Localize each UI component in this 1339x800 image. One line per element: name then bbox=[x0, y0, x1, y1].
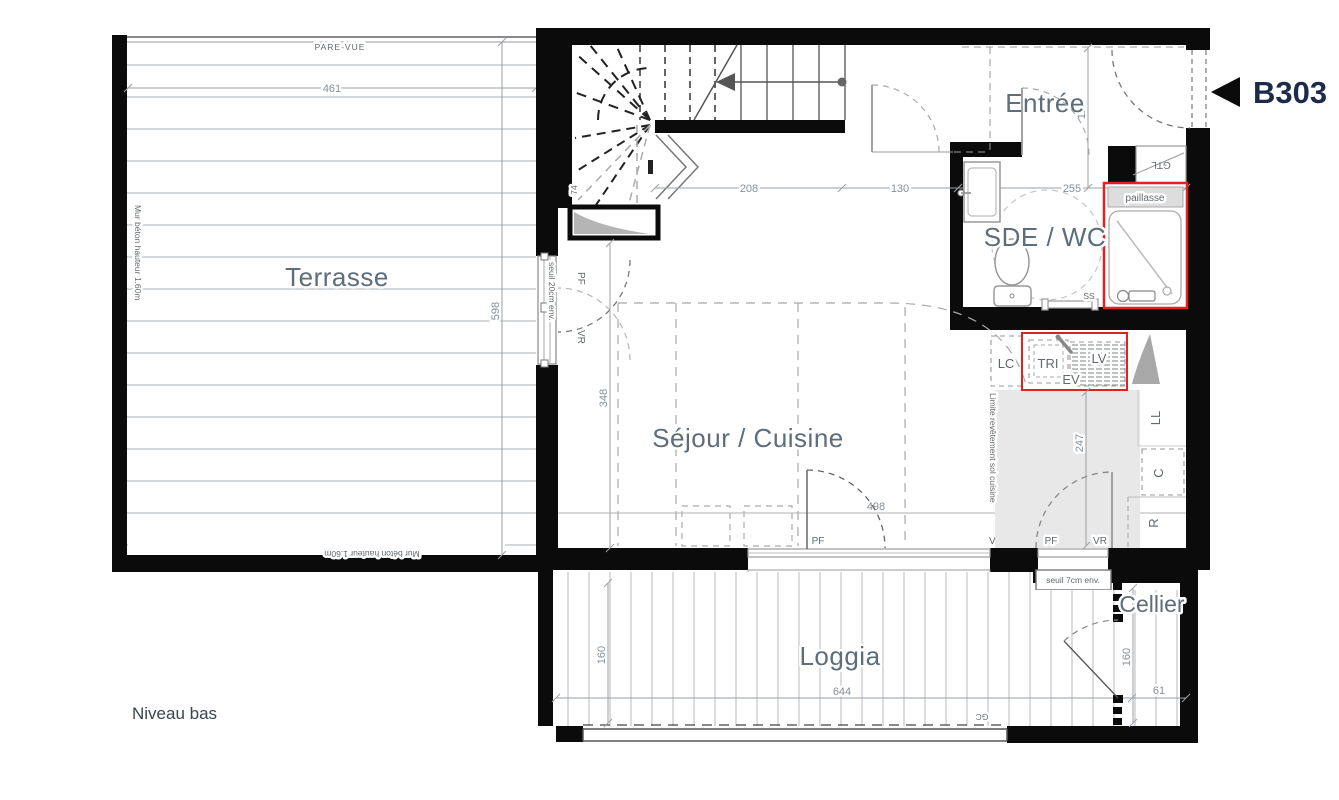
loggia-south-wall bbox=[1007, 726, 1180, 743]
north-wall bbox=[536, 28, 1196, 45]
level-label: Niveau bas bbox=[132, 704, 217, 723]
west-wall-stairs bbox=[536, 28, 572, 208]
gtl-cabinet: GTL bbox=[1133, 146, 1186, 183]
under-stair-cupboard bbox=[570, 207, 658, 238]
dim-498: 498 bbox=[867, 501, 885, 513]
lv-label: LV bbox=[1092, 351, 1107, 366]
loggia-railing bbox=[583, 729, 1007, 741]
c-label: C bbox=[1151, 468, 1166, 477]
ev-label: EV bbox=[1062, 372, 1080, 387]
entry-door bbox=[1112, 50, 1206, 128]
stair-winder-upper bbox=[574, 45, 650, 120]
dim-247: 247 bbox=[1074, 434, 1086, 452]
dim-61: 61 bbox=[1153, 685, 1165, 697]
dim-208: 208 bbox=[740, 183, 758, 195]
dim-598: 598 bbox=[490, 302, 502, 320]
dim-160-loggia: 160 bbox=[596, 646, 608, 664]
seuil-20-label: seuil 20cm env. bbox=[547, 262, 557, 320]
tri-label: TRI bbox=[1038, 356, 1059, 371]
stair-treads-dashed bbox=[640, 45, 715, 120]
entry-door-arc bbox=[1112, 50, 1190, 128]
loggia-area: 644 160 GC Loggia bbox=[552, 572, 1190, 741]
vr-label-west: VR bbox=[575, 330, 586, 344]
dim-74: 74 bbox=[569, 185, 579, 195]
gc-label: GC bbox=[976, 712, 989, 722]
terrasse-west-wall bbox=[112, 35, 127, 572]
floor-plan-drawing: 461 598 Mur béton hauteur 1.60m Mur béto… bbox=[0, 0, 1339, 800]
paillasse-label: paillasse bbox=[1126, 193, 1165, 204]
terrasse-label: Terrasse bbox=[285, 262, 389, 292]
stair-wall bbox=[655, 120, 845, 133]
mur-beton-label-bottom: Mur béton hauteur 1.60m bbox=[324, 549, 419, 559]
dim-644: 644 bbox=[833, 686, 851, 698]
lc-label: LC bbox=[998, 356, 1015, 371]
stair-direction-arrow bbox=[716, 73, 847, 91]
sde-wc-label: SDE / WC bbox=[984, 222, 1106, 252]
sde-wc-area: SS paillasse SDE / WC bbox=[958, 88, 1187, 310]
washbasin-icon bbox=[958, 162, 1000, 222]
unit-id-label: B303 bbox=[1253, 75, 1327, 110]
limite-revetement-label: Limite revêtement sol cuisine bbox=[988, 393, 998, 503]
mur-beton-label-left: Mur béton hauteur 1.60m bbox=[133, 205, 143, 300]
dim-160-cellier: 160 bbox=[1121, 648, 1133, 666]
window-door-arc bbox=[558, 260, 630, 332]
pf-label-south1: PF bbox=[812, 536, 825, 547]
dim-461: 461 bbox=[323, 83, 341, 95]
pf-label-west: PF bbox=[575, 272, 586, 285]
south-wall-sejour bbox=[536, 548, 748, 570]
loggia-label: Loggia bbox=[799, 641, 880, 671]
terrasse-area: 461 598 Mur béton hauteur 1.60m Mur béto… bbox=[112, 35, 542, 572]
floor-plan-page: 461 598 Mur béton hauteur 1.60m Mur béto… bbox=[0, 0, 1339, 800]
sejour-partition-door bbox=[872, 85, 953, 152]
sejour-label: Séjour / Cuisine bbox=[652, 423, 844, 453]
sde-west-wall bbox=[950, 142, 963, 329]
furniture-dashed-1 bbox=[682, 506, 730, 546]
pf-label-south2: PF bbox=[1045, 536, 1058, 547]
r-label: R bbox=[1146, 518, 1161, 527]
kitchen-floor bbox=[995, 390, 1140, 548]
furniture-dashed-2 bbox=[744, 506, 792, 546]
staircase: 74 bbox=[569, 45, 847, 238]
unit-arrow-icon bbox=[1211, 77, 1240, 107]
east-wall bbox=[1186, 128, 1210, 570]
shower-icon: paillasse bbox=[1104, 183, 1187, 308]
vr-label-south2: VR bbox=[1093, 536, 1107, 547]
west-window: PF VR seuil 20cm env. bbox=[538, 253, 630, 367]
seuil-7-label-2: seuil 7cm env. bbox=[1046, 575, 1100, 585]
cellier-label: Cellier bbox=[1119, 591, 1185, 617]
b303-marker[interactable]: B303 bbox=[1211, 75, 1327, 110]
terrasse-decking bbox=[127, 42, 536, 555]
ll-label: LL bbox=[1148, 411, 1163, 425]
gtl-label: GTL bbox=[1151, 159, 1171, 170]
drain-icon bbox=[1163, 287, 1171, 295]
ss-label: SS bbox=[1083, 291, 1095, 301]
dim-348: 348 bbox=[598, 389, 610, 407]
dim-130: 130 bbox=[891, 183, 909, 195]
pare-vue-label: PARE-VUE bbox=[315, 42, 366, 52]
loggia-west-wall bbox=[538, 570, 553, 726]
south-window-1: PF VR seuil 7cm env. bbox=[748, 470, 1003, 589]
wall-wedge bbox=[1132, 334, 1160, 384]
stair-winder-lower bbox=[575, 125, 698, 207]
